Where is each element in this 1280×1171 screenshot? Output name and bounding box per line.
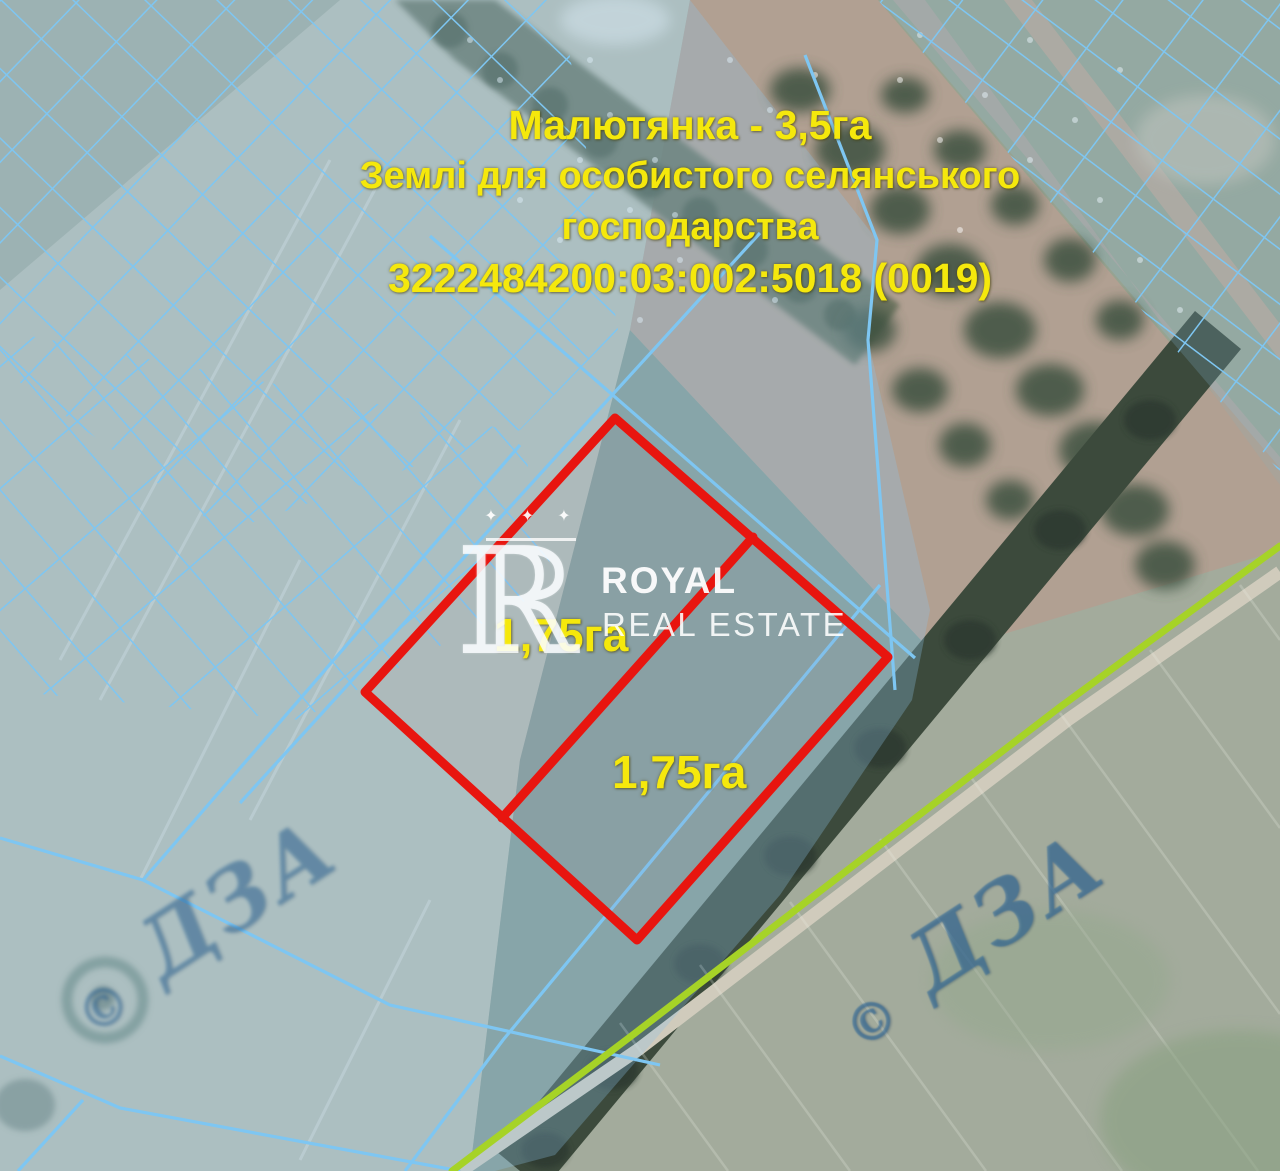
plot-title: Малютянка - 3,5га [320,100,1060,151]
brand-name: ROYAL [601,560,737,602]
satellite-map-screenshot: Малютянка - 3,5га Землі для особистого с… [0,0,1280,1171]
land-purpose-line2: господарства [320,202,1060,253]
cadastral-number: 3222484200:03:002:5018 (0019) [320,253,1060,304]
brand-tagline: REAL ESTATE [602,606,847,644]
plot-annotation: Малютянка - 3,5га Землі для особистого с… [320,100,1060,304]
plot-area-label-right: 1,75га [612,745,746,799]
land-purpose-line1: Землі для особистого селянського [320,151,1060,202]
brand-monogram-r-icon: ℝ [456,528,579,676]
